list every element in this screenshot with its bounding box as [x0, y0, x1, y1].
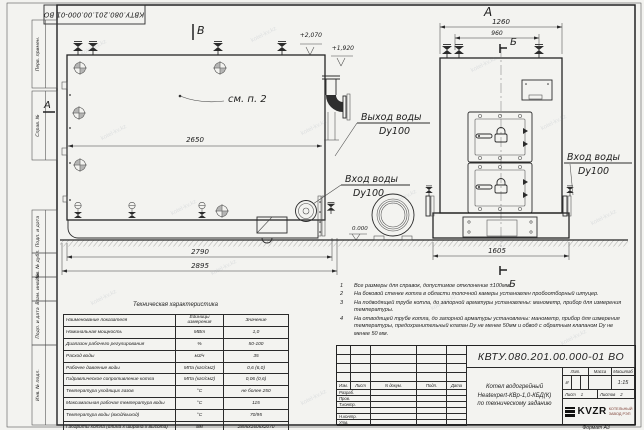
company-logo: KVZR КОТЕЛЬНЫЙ ЗАВОД РЭП	[563, 399, 635, 424]
col-docum: N докум.	[371, 382, 417, 390]
sheets-label: Листов	[600, 392, 615, 397]
param-value: 0,6 (6,0)	[224, 362, 289, 374]
note-number: 4	[338, 316, 354, 338]
param-name: Расход воды	[64, 350, 176, 362]
table-row: Диапазон рабочего регулирования%50-100	[64, 338, 289, 350]
format-label: Формат А3	[556, 425, 636, 430]
sheet-value: 1	[581, 392, 583, 397]
drawing-title: Котел водогрейный Heatexpert-КВр-1,0-КБД…	[467, 368, 563, 424]
margin-label: Подп. и дата	[35, 216, 41, 247]
inlet-valve-icon	[327, 203, 336, 214]
lit-value: И	[563, 376, 572, 390]
datum-target-icon	[213, 61, 227, 75]
param-value: 115	[224, 398, 289, 410]
inlet-right-dn-label: Dy100	[578, 166, 609, 177]
outlet-label: Выход воды	[361, 112, 422, 123]
note-number: 2	[338, 291, 354, 298]
table-header-row: Наименование показателя Единицы измерени…	[64, 315, 289, 327]
pipe-labels: Выход воды Dy100 Вход воды Dy100 Вход во…	[313, 112, 632, 204]
param-unit: °С	[176, 398, 224, 410]
air-valve-icon	[454, 45, 464, 59]
param-unit: м3/ч	[176, 350, 224, 362]
format-word: Формат	[582, 425, 602, 430]
inlet-dn-label: Dy100	[353, 188, 384, 199]
note-item: 2 На боковой стенке котла в области топо…	[338, 291, 626, 298]
note-item: 4 На отводящей трубе котла, до запорной …	[338, 316, 626, 338]
param-unit: °С	[176, 386, 224, 398]
inlet-right-label: Вход воды	[567, 152, 621, 163]
drawing-sheet: КВТУ.080.201.00.000-01 ВО Перв. примен. …	[0, 0, 644, 430]
elevation-1920: +1,920	[332, 45, 354, 52]
view-a-label: А	[483, 5, 492, 19]
flange-valve-icon	[425, 186, 433, 196]
sheets-cell: Листов 2	[598, 390, 635, 399]
kvzr-logo-icon	[565, 407, 575, 417]
lit-header: Лит.	[563, 368, 589, 376]
param-name: Максимальная рабочая температура воды	[64, 398, 176, 410]
param-value: 1,0	[224, 326, 289, 338]
param-name: Температура воды (вход/выход)	[64, 410, 176, 422]
param-unit: МПа (кгс/см2)	[176, 374, 224, 386]
col-header-name: Наименование показателя	[64, 315, 176, 327]
row-utv: Утв.	[337, 420, 371, 426]
param-value: 50-100	[224, 338, 289, 350]
front-view: А 1260 960 Б 1605 Б	[425, 5, 574, 290]
elevation-zero: 0.000	[352, 226, 368, 232]
title-block: Изм. Лист N докум. Подп. Дата Разраб. Пр…	[336, 345, 636, 425]
note-item: 1 Все размеры для справок, допустимое от…	[338, 283, 626, 290]
air-valve-icon	[442, 45, 452, 59]
param-unit: МВт	[176, 326, 224, 338]
param-unit: мм	[176, 422, 224, 430]
table-row: Температура уходящих газов°Сне более 250	[64, 386, 289, 398]
drawing-title-line: по техническому заданию	[477, 400, 551, 408]
table-row: Максимальная рабочая температура воды°С1…	[64, 398, 289, 410]
col-list: Лист	[351, 382, 371, 390]
datum-target-icon	[73, 158, 87, 172]
param-unit: %	[176, 338, 224, 350]
table-row: Температура воды (вход/выход)°С70/95	[64, 410, 289, 422]
col-izm: Изм.	[337, 382, 351, 390]
margin-label: Справ. №	[35, 114, 41, 137]
sheet-cell: Лист 1	[563, 390, 598, 399]
param-value: не более 250	[224, 386, 289, 398]
scale-value: 1:15	[612, 376, 635, 390]
margin-columns: Перв. примен. Справ. № Подп. и дата Инв.…	[32, 20, 57, 425]
param-value: 0,06 (0,6)	[224, 374, 289, 386]
inlet-label: Вход воды	[345, 174, 399, 185]
air-valve-icon	[277, 42, 287, 56]
param-name: Температура уходящих газов	[64, 386, 176, 398]
view-a-arrow-label: А	[43, 100, 51, 111]
water-outlet-elbow	[322, 76, 350, 140]
dim-2650: 2650	[186, 136, 204, 144]
param-value: 2895х1605х2070	[224, 422, 289, 430]
col-header-value: Значение	[224, 315, 289, 327]
note-text: Все размеры для справок, допустимое откл…	[354, 283, 626, 290]
view-v-label: В	[197, 24, 205, 37]
title-block-aux: Лит. Масса Масштаб И 1:15 Лист 1	[563, 368, 635, 424]
see-note-callout: см. п. 2	[228, 94, 267, 105]
note-number: 1	[338, 283, 354, 290]
logo-text: KVZR	[577, 406, 606, 417]
logo-subtitle: КОТЕЛЬНЫЙ ЗАВОД РЭП	[609, 407, 633, 416]
sheet-label: Лист	[565, 392, 576, 397]
param-name: Номинальная мощность	[64, 326, 176, 338]
col-data: Дата	[447, 382, 467, 390]
drain-valve-icon	[74, 202, 82, 218]
param-unit: МПа (кгс/см2)	[176, 362, 224, 374]
param-name: Диапазон рабочего регулирования	[64, 338, 176, 350]
tech-table: Наименование показателя Единицы измерени…	[63, 314, 289, 430]
drawing-title-line: Heatexpert-КВр-1,0-КБД(К)	[478, 392, 552, 400]
masshtab-header: Масштаб	[612, 368, 635, 376]
format-value: А3	[604, 425, 610, 430]
massa-value	[589, 376, 612, 390]
margin-label: Взам. инв. №	[35, 273, 41, 304]
dim-2790: 2790	[191, 248, 209, 256]
water-inlet-flange	[296, 196, 336, 236]
param-value: 35	[224, 350, 289, 362]
margin-label: Инв. № подл.	[35, 369, 41, 401]
furnace-door	[468, 163, 532, 213]
dim-960: 960	[491, 30, 503, 37]
title-block-left: Изм. Лист N докум. Подп. Дата Разраб. Пр…	[337, 346, 467, 424]
dim-1260: 1260	[492, 18, 510, 26]
margin-label: Перв. примен.	[35, 37, 41, 72]
table-row: Габариты котла (длина х ширина х высота)…	[64, 422, 289, 430]
ground-line	[60, 240, 628, 247]
section-b-top-label: Б	[510, 37, 517, 48]
datum-target-icon	[73, 61, 87, 75]
outlet-dn-label: Dy100	[379, 126, 410, 137]
side-view: 2650 см. п. 2 В А +2,070 +1,920	[43, 24, 368, 275]
title-block-right: КВТУ.080.201.00.000-01 ВО Котел водогрей…	[467, 346, 635, 424]
dim-2895: 2895	[191, 262, 209, 270]
air-valve-icon	[73, 42, 83, 56]
param-name: Габариты котла (длина х ширина х высота)	[64, 422, 176, 430]
tech-characteristics: Техническая характеристика Наименование …	[63, 300, 288, 430]
note-text: На отводящей трубе котла, до запорной ар…	[354, 316, 626, 338]
datum-target-icon	[215, 204, 229, 218]
col-podp: Подп.	[417, 382, 447, 390]
margin-label: Подп. и дата	[35, 307, 41, 338]
col-header-unit: Единицы измерения	[176, 315, 224, 327]
table-row: Гидравлическое сопротивление котлаМПа (к…	[64, 374, 289, 386]
note-text: На подводящей трубе котла, до запорной а…	[354, 300, 626, 315]
drawing-title-line: Котел водогрейный	[486, 383, 543, 391]
massa-header: Масса	[589, 368, 612, 376]
note-text: На боковой стенке котла в области топочн…	[354, 291, 626, 298]
param-name: Гидравлическое сопротивление котла	[64, 374, 176, 386]
notes-list: 1 Все размеры для справок, допустимое от…	[338, 283, 626, 339]
param-value: 70/95	[224, 410, 289, 422]
sheets-value: 2	[620, 392, 622, 397]
table-row: Расход водым3/ч35	[64, 350, 289, 362]
table-row: Рабочее давление водыМПа (кгс/см2)0,6 (6…	[64, 362, 289, 374]
tech-table-title: Техническая характеристика	[63, 300, 288, 314]
air-valve-icon	[213, 42, 223, 56]
furnace-door	[468, 112, 532, 162]
note-number: 3	[338, 300, 354, 315]
drain-valve-icon	[128, 202, 136, 218]
table-row: Номинальная мощностьМВт1,0	[64, 326, 289, 338]
param-unit: °С	[176, 410, 224, 422]
logo-subtitle-line: ЗАВОД РЭП	[609, 412, 633, 417]
air-valve-icon	[88, 42, 98, 56]
blower-fan	[372, 194, 414, 240]
dim-1605: 1605	[488, 247, 506, 255]
param-name: Рабочее давление воды	[64, 362, 176, 374]
datum-target-icon	[72, 106, 86, 120]
elevation-2070: +2,070	[300, 32, 322, 39]
corner-stamp-text: КВТУ.080.201.00.000-01 ВО	[43, 11, 144, 19]
note-item: 3 На подводящей трубе котла, до запорной…	[338, 300, 626, 315]
document-number: КВТУ.080.201.00.000-01 ВО	[467, 346, 635, 368]
drain-valve-icon	[198, 202, 206, 218]
